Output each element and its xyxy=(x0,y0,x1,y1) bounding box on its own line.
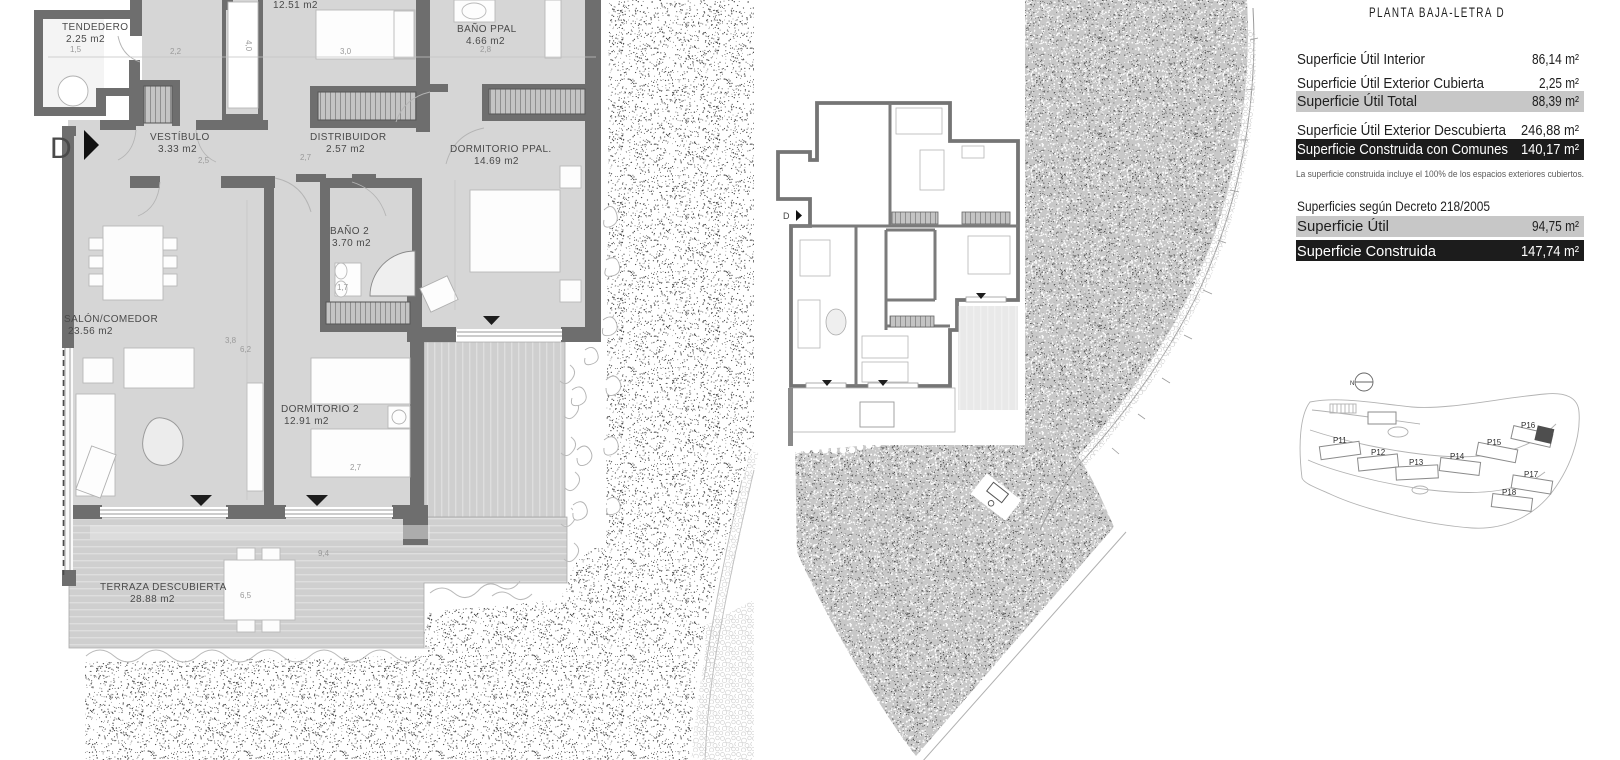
svg-text:147,74 m²: 147,74 m² xyxy=(1521,244,1579,260)
svg-text:6,5: 6,5 xyxy=(240,591,252,600)
svg-text:14.69 m2: 14.69 m2 xyxy=(474,156,519,167)
svg-text:P17: P17 xyxy=(1524,470,1539,479)
svg-text:4,0: 4,0 xyxy=(244,40,253,52)
svg-text:DORMITORIO PPAL.: DORMITORIO PPAL. xyxy=(450,144,552,155)
svg-text:P12: P12 xyxy=(1371,448,1386,457)
svg-text:Superficie Útil: Superficie Útil xyxy=(1297,218,1389,235)
svg-text:140,17 m²: 140,17 m² xyxy=(1521,142,1579,158)
svg-text:2.57 m2: 2.57 m2 xyxy=(326,144,365,155)
svg-text:BAÑO 2: BAÑO 2 xyxy=(330,224,369,237)
svg-text:3.70 m2: 3.70 m2 xyxy=(332,238,371,249)
svg-text:VESTÍBULO: VESTÍBULO xyxy=(150,130,210,143)
svg-text:3,0: 3,0 xyxy=(340,47,352,56)
svg-text:BAÑO PPAL: BAÑO PPAL xyxy=(457,22,517,35)
svg-text:1,7: 1,7 xyxy=(337,283,349,292)
svg-text:Superficie Útil Interior: Superficie Útil Interior xyxy=(1297,51,1425,68)
svg-text:2,25 m²: 2,25 m² xyxy=(1539,76,1579,92)
svg-text:P15: P15 xyxy=(1487,438,1502,447)
svg-text:2,7: 2,7 xyxy=(350,463,362,472)
svg-text:D: D xyxy=(50,132,72,165)
svg-text:P18: P18 xyxy=(1502,488,1517,497)
svg-text:P16: P16 xyxy=(1521,421,1536,430)
svg-text:2,8: 2,8 xyxy=(480,45,492,54)
svg-text:P14: P14 xyxy=(1450,452,1465,461)
svg-text:9,4: 9,4 xyxy=(318,549,330,558)
svg-text:Superficie Útil Exterior Descu: Superficie Útil Exterior Descubierta xyxy=(1297,122,1507,139)
svg-text:Superficie Útil Total: Superficie Útil Total xyxy=(1297,93,1417,110)
svg-text:28.88 m2: 28.88 m2 xyxy=(130,594,175,605)
svg-text:2.25 m2: 2.25 m2 xyxy=(66,34,105,45)
svg-text:La superficie construida inclu: La superficie construida incluye el 100%… xyxy=(1296,169,1584,180)
svg-text:12.51 m2: 12.51 m2 xyxy=(273,0,318,11)
svg-text:D: D xyxy=(783,211,790,221)
svg-text:23.56 m2: 23.56 m2 xyxy=(68,326,113,337)
svg-text:Superficie Construida con Comu: Superficie Construida con Comunes xyxy=(1297,142,1508,158)
svg-text:1,5: 1,5 xyxy=(70,45,82,54)
svg-text:6,2: 6,2 xyxy=(240,345,252,354)
svg-text:12.91 m2: 12.91 m2 xyxy=(284,416,329,427)
svg-text:P13: P13 xyxy=(1409,458,1424,467)
svg-text:SALÓN/COMEDOR: SALÓN/COMEDOR xyxy=(64,312,158,325)
svg-text:Superficie Útil Exterior Cubie: Superficie Útil Exterior Cubierta xyxy=(1297,75,1485,92)
svg-text:2,7: 2,7 xyxy=(300,153,312,162)
svg-text:TERRAZA DESCUBIERTA: TERRAZA DESCUBIERTA xyxy=(100,582,227,593)
svg-text:2,5: 2,5 xyxy=(198,156,210,165)
svg-text:3.33 m2: 3.33 m2 xyxy=(158,144,197,155)
svg-text:DORMITORIO 2: DORMITORIO 2 xyxy=(281,404,359,415)
svg-text:88,39 m²: 88,39 m² xyxy=(1532,94,1579,110)
svg-text:TENDEDERO: TENDEDERO xyxy=(62,22,128,33)
svg-text:94,75 m²: 94,75 m² xyxy=(1532,219,1579,235)
svg-text:86,14 m²: 86,14 m² xyxy=(1532,52,1579,68)
svg-text:246,88 m²: 246,88 m² xyxy=(1521,123,1579,139)
svg-text:DISTRIBUIDOR: DISTRIBUIDOR xyxy=(310,132,386,143)
svg-text:3,8: 3,8 xyxy=(225,336,237,345)
svg-text:Superficies según Decreto 218/: Superficies según Decreto 218/2005 xyxy=(1297,198,1490,214)
svg-text:Superficie Construida: Superficie Construida xyxy=(1297,244,1437,260)
svg-text:P11: P11 xyxy=(1333,436,1347,445)
svg-text:PLANTA BAJA-LETRA D: PLANTA BAJA-LETRA D xyxy=(1369,4,1505,20)
svg-text:N: N xyxy=(1350,381,1354,387)
svg-text:2,2: 2,2 xyxy=(170,47,182,56)
